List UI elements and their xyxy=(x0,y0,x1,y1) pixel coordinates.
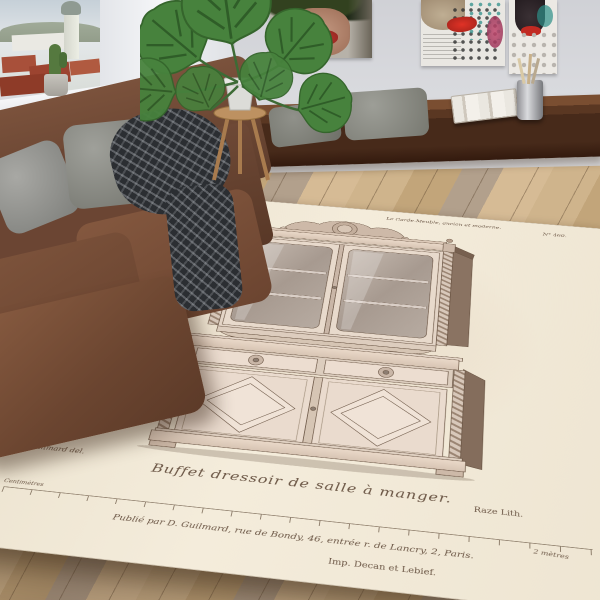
monstera-plant xyxy=(140,0,360,194)
scale-bar xyxy=(2,486,593,555)
knit-throw-drape xyxy=(164,182,245,313)
plate-number: N° 460. xyxy=(543,232,567,238)
printer-credit: Imp. Decan et Lebief. xyxy=(327,557,436,577)
room-photo: Ameublement. Le Garde-Meuble, ancien et … xyxy=(0,0,600,600)
plant-stool xyxy=(214,106,268,180)
